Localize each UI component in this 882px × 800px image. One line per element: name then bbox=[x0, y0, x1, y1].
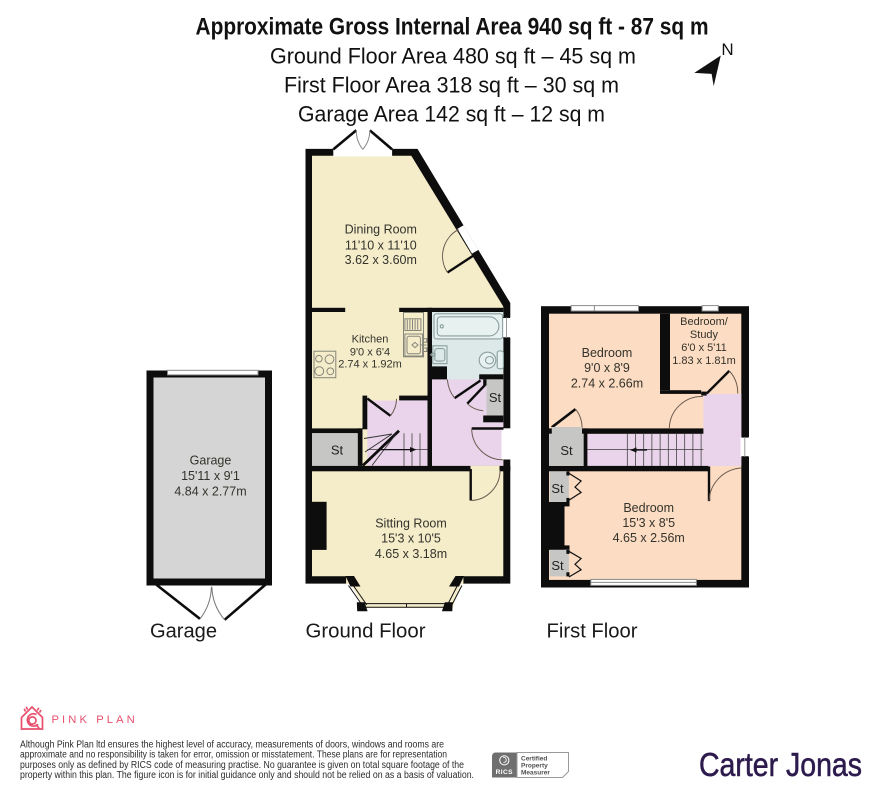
svg-text:Bedroom: Bedroom bbox=[582, 346, 633, 360]
svg-text:Ground Floor: Ground Floor bbox=[306, 620, 426, 643]
svg-text:Carter Jonas: Carter Jonas bbox=[699, 746, 862, 783]
svg-text:PINK PLAN: PINK PLAN bbox=[52, 714, 138, 726]
svg-text:Bedroom/: Bedroom/ bbox=[680, 316, 729, 328]
svg-text:Ground Floor Area 480 sq ft –: Ground Floor Area 480 sq ft – 45 sq m bbox=[270, 44, 636, 69]
svg-text:Kitchen: Kitchen bbox=[352, 334, 389, 346]
svg-text:3.62 x 3.60m: 3.62 x 3.60m bbox=[345, 253, 417, 267]
svg-text:Bedroom: Bedroom bbox=[623, 501, 674, 515]
svg-text:St: St bbox=[551, 558, 564, 573]
svg-text:First Floor: First Floor bbox=[547, 620, 638, 643]
svg-text:Sitting Room: Sitting Room bbox=[375, 516, 447, 530]
svg-text:St: St bbox=[560, 443, 573, 458]
svg-text:11'10 x 11'10: 11'10 x 11'10 bbox=[345, 238, 417, 252]
svg-text:N: N bbox=[721, 40, 733, 59]
svg-text:4.65 x 3.18m: 4.65 x 3.18m bbox=[375, 547, 447, 561]
svg-text:Garage Area 142 sq ft – 12 sq: Garage Area 142 sq ft – 12 sq m bbox=[298, 102, 605, 127]
svg-text:St: St bbox=[331, 443, 344, 458]
svg-text:2.74 x 2.66m: 2.74 x 2.66m bbox=[571, 377, 643, 391]
svg-text:4.84 x 2.77m: 4.84 x 2.77m bbox=[174, 485, 246, 499]
svg-text:Certified: Certified bbox=[521, 756, 547, 763]
svg-text:Property: Property bbox=[521, 763, 548, 770]
svg-text:Dining Room: Dining Room bbox=[345, 223, 417, 237]
svg-text:First Floor Area 318 sq ft – 3: First Floor Area 318 sq ft – 30 sq m bbox=[284, 73, 619, 98]
svg-text:Approximate Gross Internal Are: Approximate Gross Internal Area 940 sq f… bbox=[196, 14, 709, 41]
svg-text:15'11 x 9'1: 15'11 x 9'1 bbox=[181, 469, 240, 483]
svg-text:15'3 x 8'5: 15'3 x 8'5 bbox=[622, 516, 675, 530]
svg-text:Garage: Garage bbox=[190, 454, 232, 468]
svg-text:Garage: Garage bbox=[150, 620, 217, 643]
svg-text:RICS: RICS bbox=[496, 769, 514, 776]
svg-text:Study: Study bbox=[690, 329, 719, 341]
svg-text:property within this plan. The: property within this plan. The figure ic… bbox=[20, 770, 474, 781]
svg-text:9'0 x 6'4: 9'0 x 6'4 bbox=[350, 346, 390, 358]
svg-text:9'0 x 8'9: 9'0 x 8'9 bbox=[584, 361, 630, 375]
svg-text:Measurer: Measurer bbox=[521, 770, 550, 777]
svg-text:1.83 x 1.81m: 1.83 x 1.81m bbox=[672, 355, 736, 367]
svg-text:6'0 x 5'11: 6'0 x 5'11 bbox=[681, 342, 727, 354]
svg-text:St: St bbox=[489, 390, 502, 405]
svg-text:2.74 x 1.92m: 2.74 x 1.92m bbox=[338, 359, 402, 371]
svg-text:St: St bbox=[551, 481, 564, 496]
svg-text:4.65 x 2.56m: 4.65 x 2.56m bbox=[613, 531, 685, 545]
svg-text:15'3 x 10'5: 15'3 x 10'5 bbox=[381, 532, 441, 546]
